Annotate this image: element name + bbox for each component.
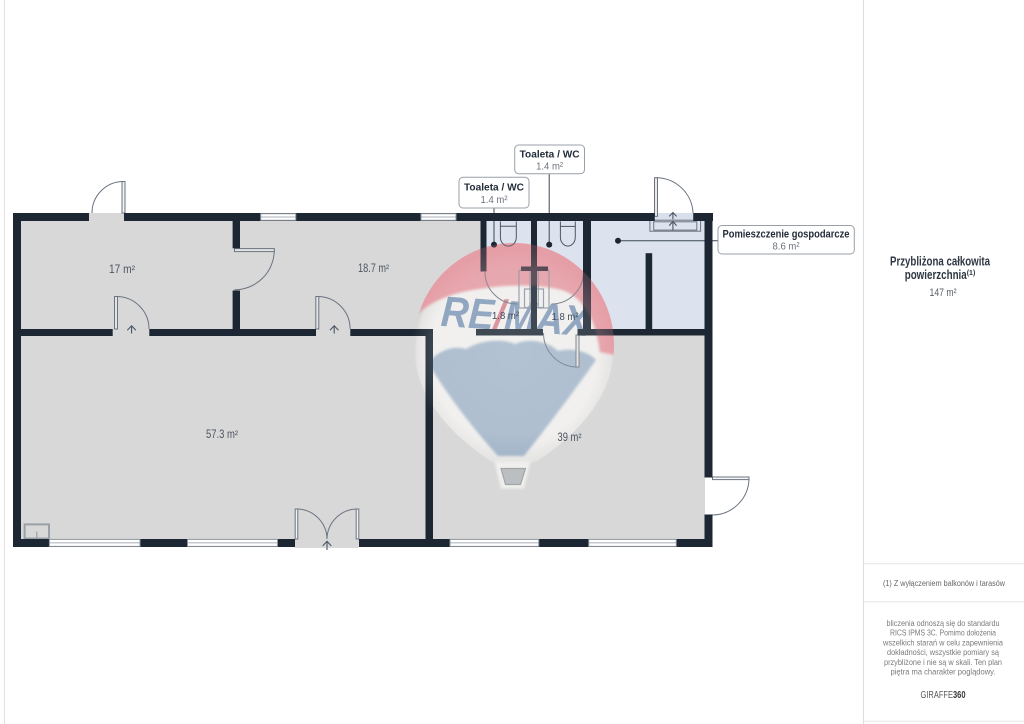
svg-text:(1) Z wyłączeniem balkonów i t: (1) Z wyłączeniem balkonów i tarasów [883,578,1006,588]
svg-text:1.4 m²: 1.4 m² [481,194,508,206]
svg-text:piętra ma charakter poglądowy.: piętra ma charakter poglądowy. [891,667,996,677]
svg-text:Przybliżona całkowita: Przybliżona całkowita [890,255,991,269]
svg-text:Pomieszczenie gospodarcze: Pomieszczenie gospodarcze [723,229,850,241]
svg-text:GIRAFFE360: GIRAFFE360 [921,690,966,701]
svg-text:bliczenia odnoszą się do stand: bliczenia odnoszą się do standardu [887,618,1000,628]
svg-text:RICS IPMS 3C. Pomimo dołożenia: RICS IPMS 3C. Pomimo dołożenia [890,628,996,638]
svg-text:147 m²: 147 m² [930,287,957,299]
svg-text:wszelkich starań w celu zapewn: wszelkich starań w celu zapewnienia [882,637,1003,647]
svg-text:1.4 m²: 1.4 m² [536,161,563,173]
svg-text:1.8 m²: 1.8 m² [552,311,579,323]
svg-text:dokładności, wszystkie pomiary: dokładności, wszystkie pomiary są [887,647,999,657]
svg-text:18.7 m²: 18.7 m² [358,263,389,275]
svg-text:57.3 m²: 57.3 m² [206,429,238,441]
svg-text:17 m²: 17 m² [109,264,135,276]
svg-text:1.8 m²: 1.8 m² [492,310,519,322]
svg-text:przybliżone i nie są w skali.: przybliżone i nie są w skali. Ten plan [884,657,1002,667]
svg-text:powierzchnia(1): powierzchnia(1) [905,268,976,282]
svg-text:Toaleta / WC: Toaleta / WC [464,182,524,194]
svg-text:39 m²: 39 m² [558,432,582,444]
svg-text:8.6 m²: 8.6 m² [773,241,800,253]
svg-text:Toaleta / WC: Toaleta / WC [520,149,580,161]
